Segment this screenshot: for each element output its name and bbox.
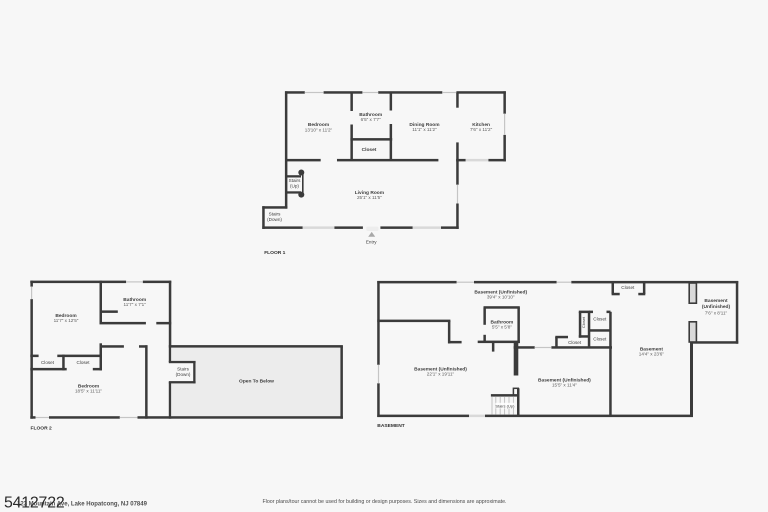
svg-text:Closet: Closet: [593, 317, 607, 322]
svg-text:11'1" x 11'2": 11'1" x 11'2": [412, 127, 437, 132]
svg-text:25'1" x 11'5": 25'1" x 11'5": [357, 195, 382, 200]
svg-text:Floor plans/tour cannot be use: Floor plans/tour cannot be used for buil…: [262, 499, 506, 505]
svg-text:Closet: Closet: [76, 360, 90, 365]
svg-text:11'7" x 7'1": 11'7" x 7'1": [124, 302, 147, 307]
svg-text:Closet: Closet: [593, 336, 607, 341]
svg-text:Closet: Closet: [362, 147, 377, 153]
svg-text:7'6" x 8'11": 7'6" x 8'11": [705, 310, 728, 315]
svg-text:(Unfinished): (Unfinished): [702, 304, 731, 310]
svg-text:(Down): (Down): [176, 372, 191, 377]
svg-text:BASEMENT: BASEMENT: [377, 423, 404, 429]
svg-text:Closet: Closet: [568, 340, 582, 345]
svg-text:(Down): (Down): [267, 217, 282, 222]
svg-text:Stairs (Up): Stairs (Up): [495, 403, 515, 408]
svg-text:Entry: Entry: [366, 240, 377, 245]
svg-text:(Up): (Up): [290, 184, 299, 189]
svg-text:Basement: Basement: [704, 298, 728, 304]
svg-text:Stairs: Stairs: [289, 178, 301, 183]
svg-text:FLOOR 2: FLOOR 2: [31, 425, 52, 431]
svg-text:18'5" x 11'11": 18'5" x 11'11": [75, 389, 102, 394]
svg-text:22'1" x 19'11": 22'1" x 19'11": [427, 372, 455, 377]
svg-text:14'4" x 23'6": 14'4" x 23'6": [639, 352, 665, 357]
svg-text:Open To Below: Open To Below: [239, 379, 274, 385]
svg-text:5412722: 5412722: [4, 495, 65, 512]
svg-text:7'6" x 11'2": 7'6" x 11'2": [470, 127, 493, 132]
svg-text:Closet: Closet: [581, 316, 586, 328]
svg-text:Closet: Closet: [621, 285, 635, 290]
svg-text:13'10" x 11'2": 13'10" x 11'2": [305, 127, 333, 132]
svg-text:FLOOR 1: FLOOR 1: [264, 250, 285, 256]
svg-text:15'5" x 11'4": 15'5" x 11'4": [552, 383, 577, 388]
svg-text:6'5" x 7'7": 6'5" x 7'7": [361, 117, 381, 122]
svg-text:39'4" x 10'10": 39'4" x 10'10": [487, 295, 515, 300]
svg-text:Stairs: Stairs: [269, 211, 281, 216]
svg-text:Closet: Closet: [41, 360, 55, 365]
svg-text:5'5" x 5'8": 5'5" x 5'8": [492, 325, 512, 330]
svg-text:Stairs: Stairs: [177, 366, 189, 371]
svg-text:11'7" x 12'5": 11'7" x 12'5": [54, 318, 79, 323]
